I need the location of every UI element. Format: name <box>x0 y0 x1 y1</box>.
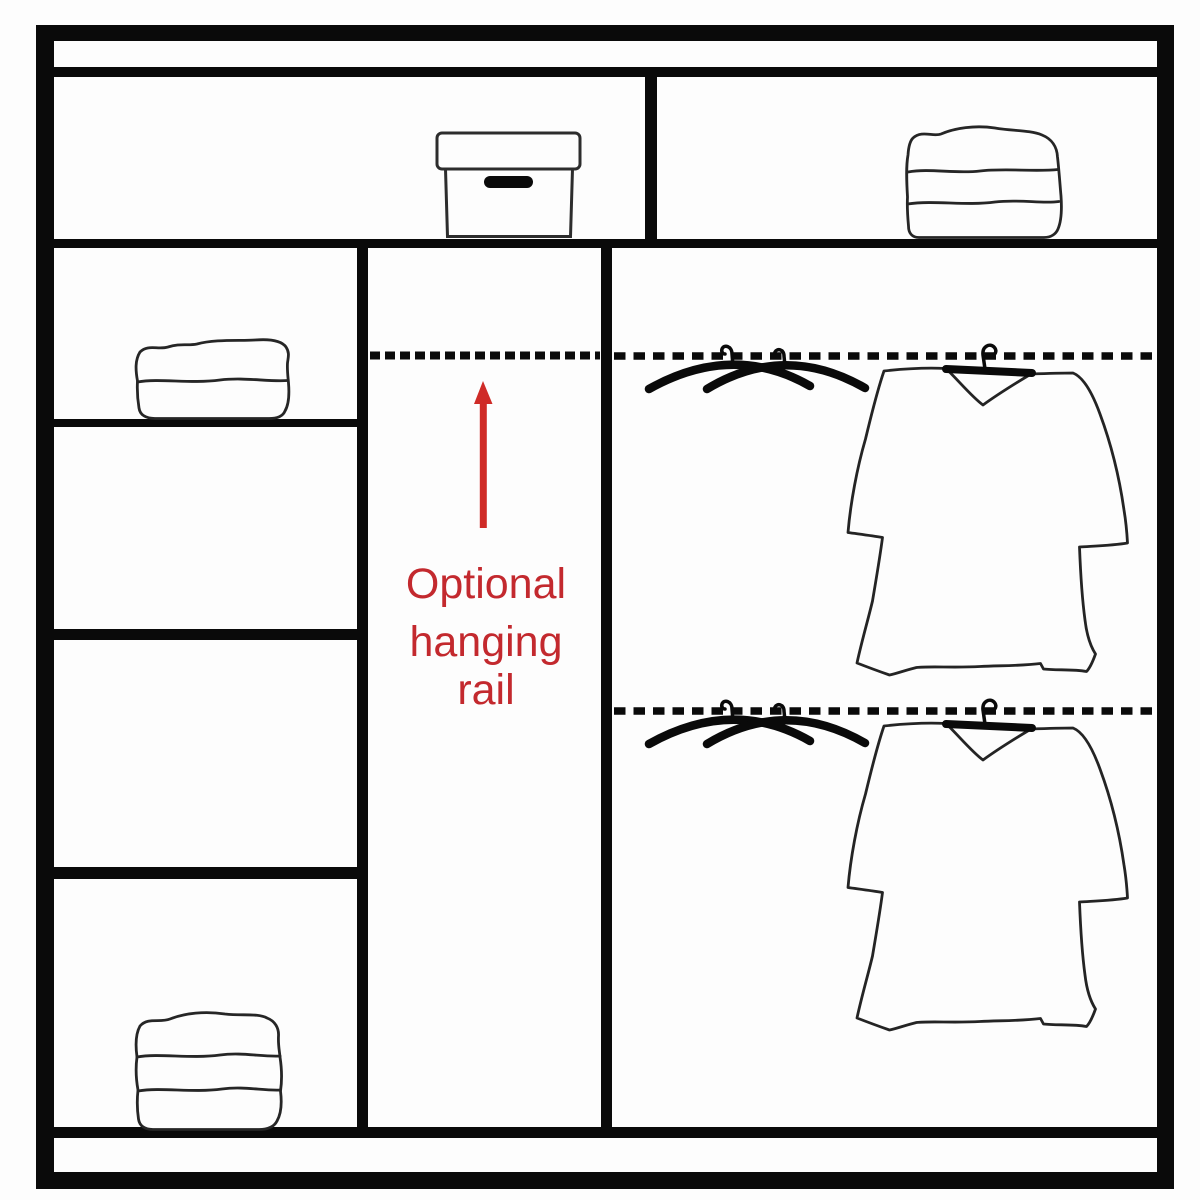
svg-text:hanging: hanging <box>409 618 562 666</box>
svg-text:Optional: Optional <box>406 560 566 608</box>
svg-text:rail: rail <box>457 666 514 714</box>
